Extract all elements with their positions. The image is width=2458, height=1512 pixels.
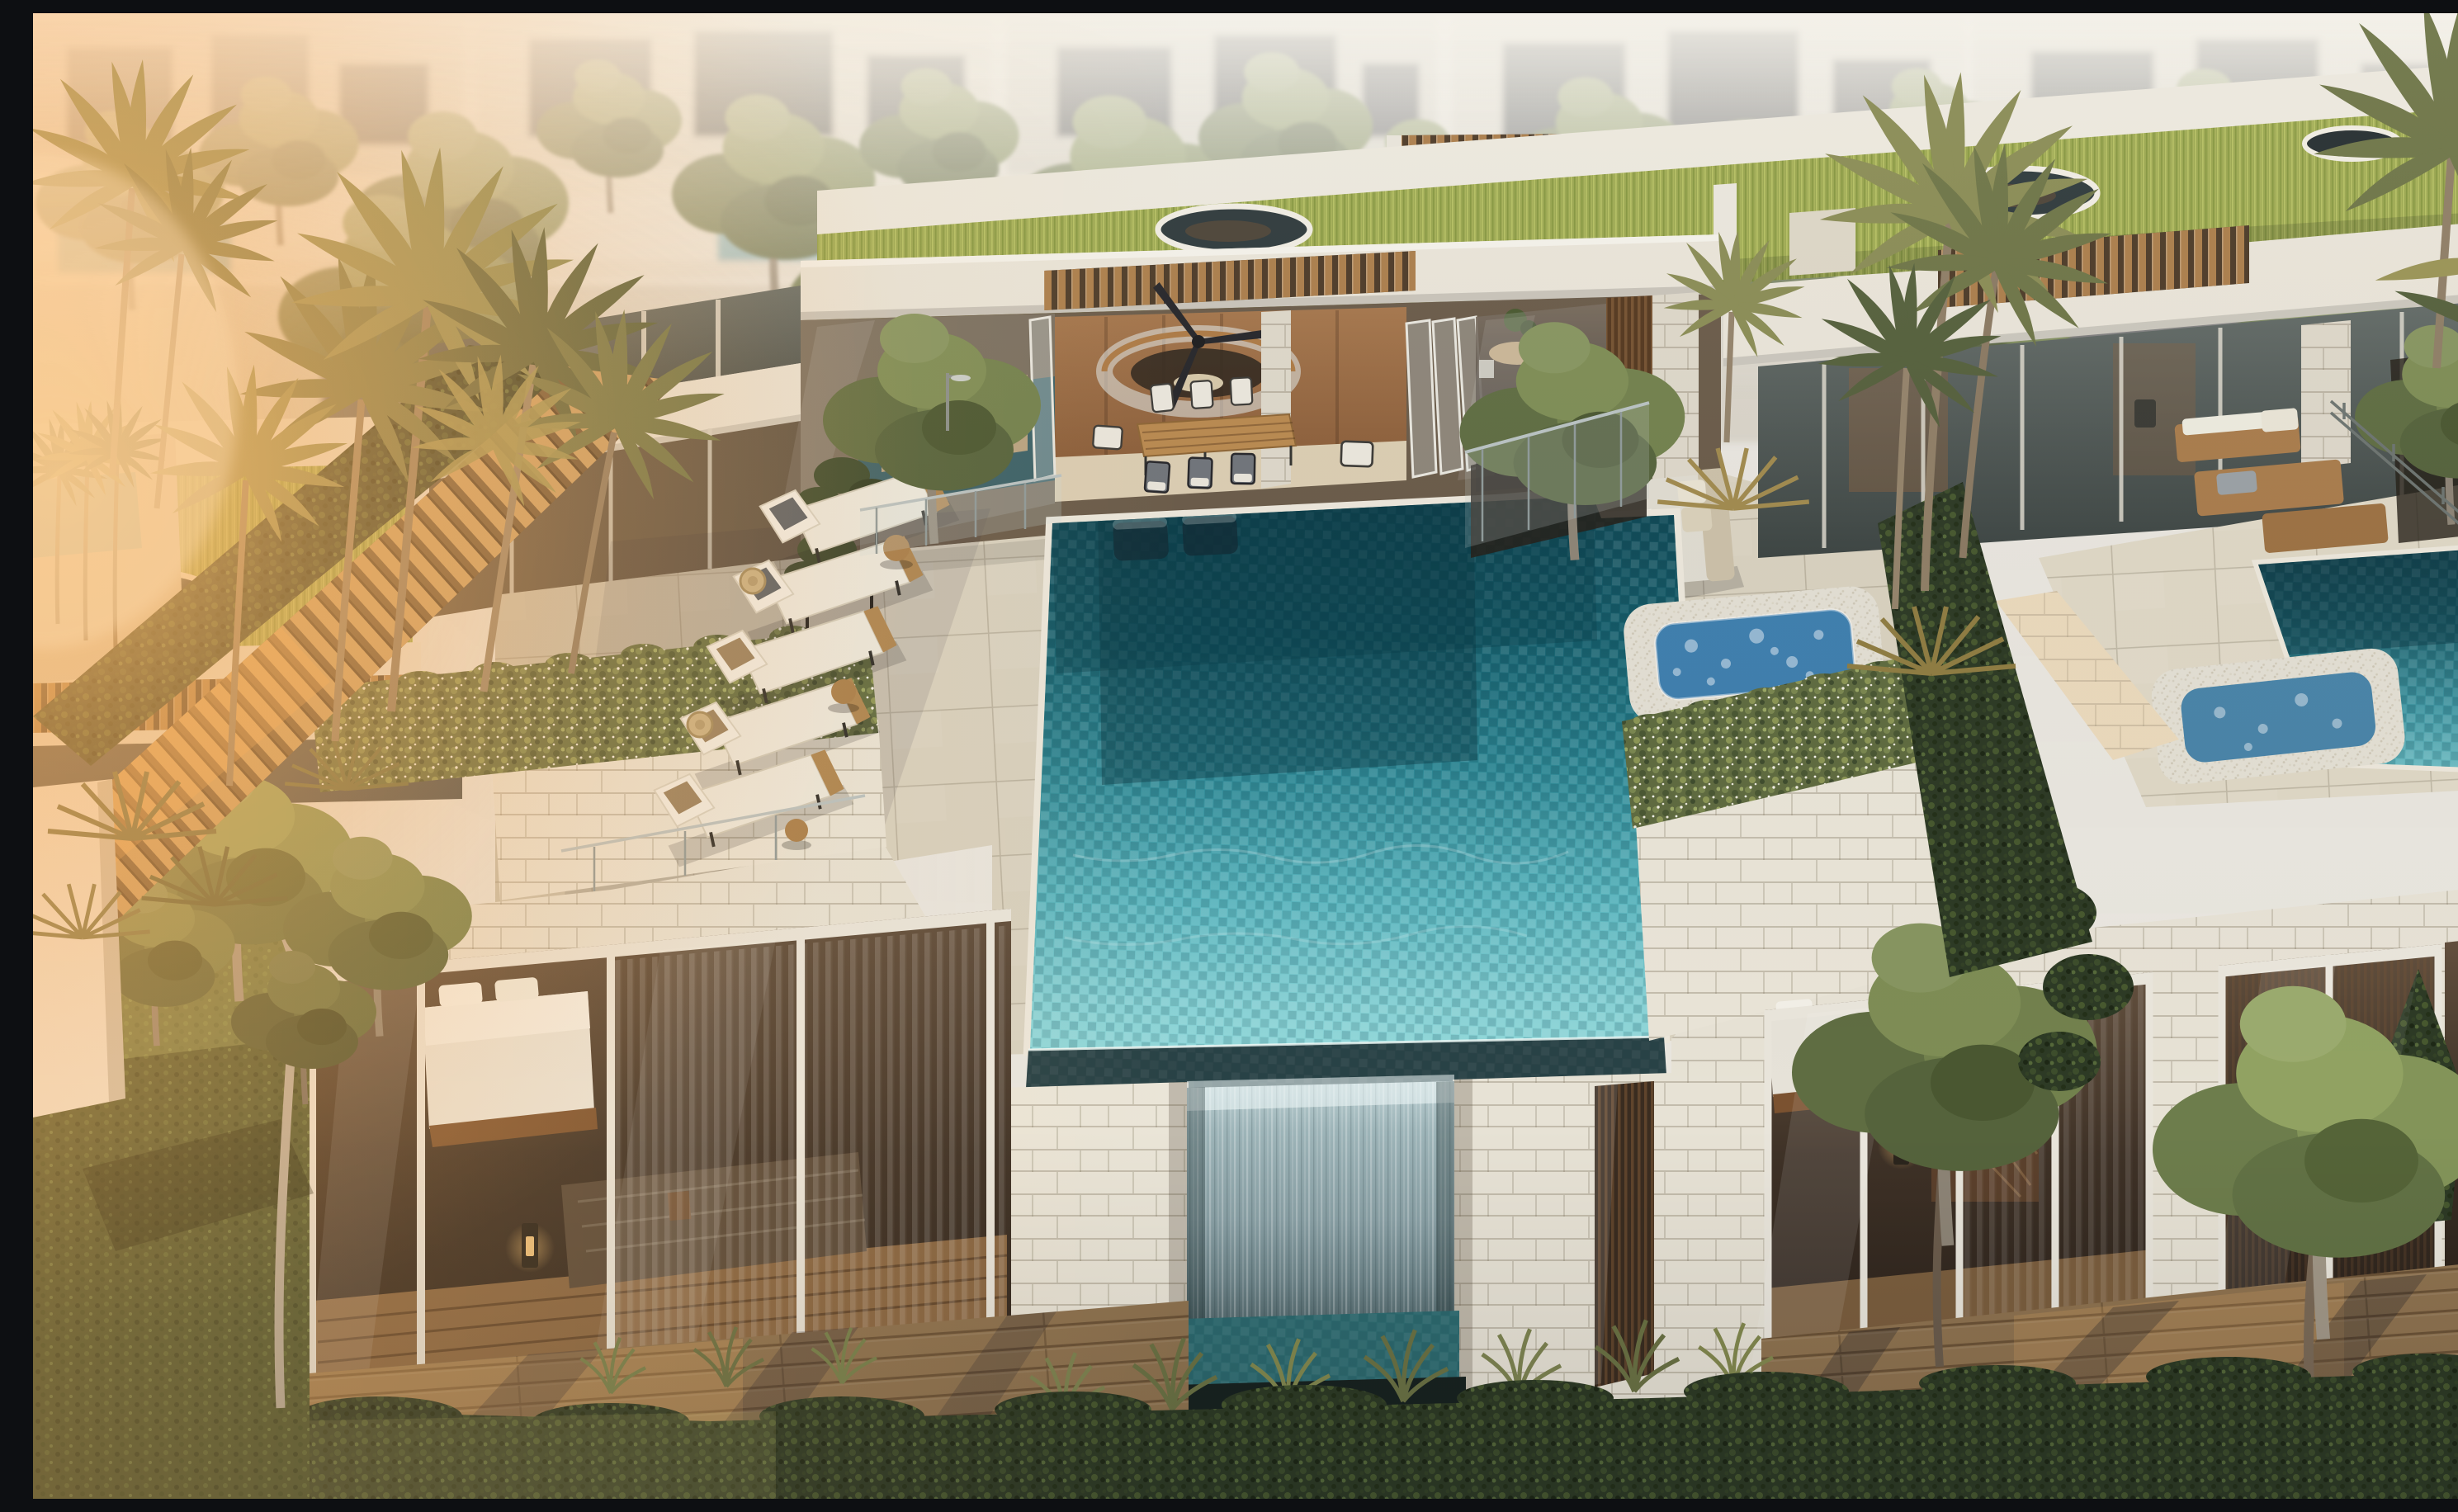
color-grade	[33, 13, 2458, 1499]
villa-aerial-rendering	[33, 13, 2458, 1499]
